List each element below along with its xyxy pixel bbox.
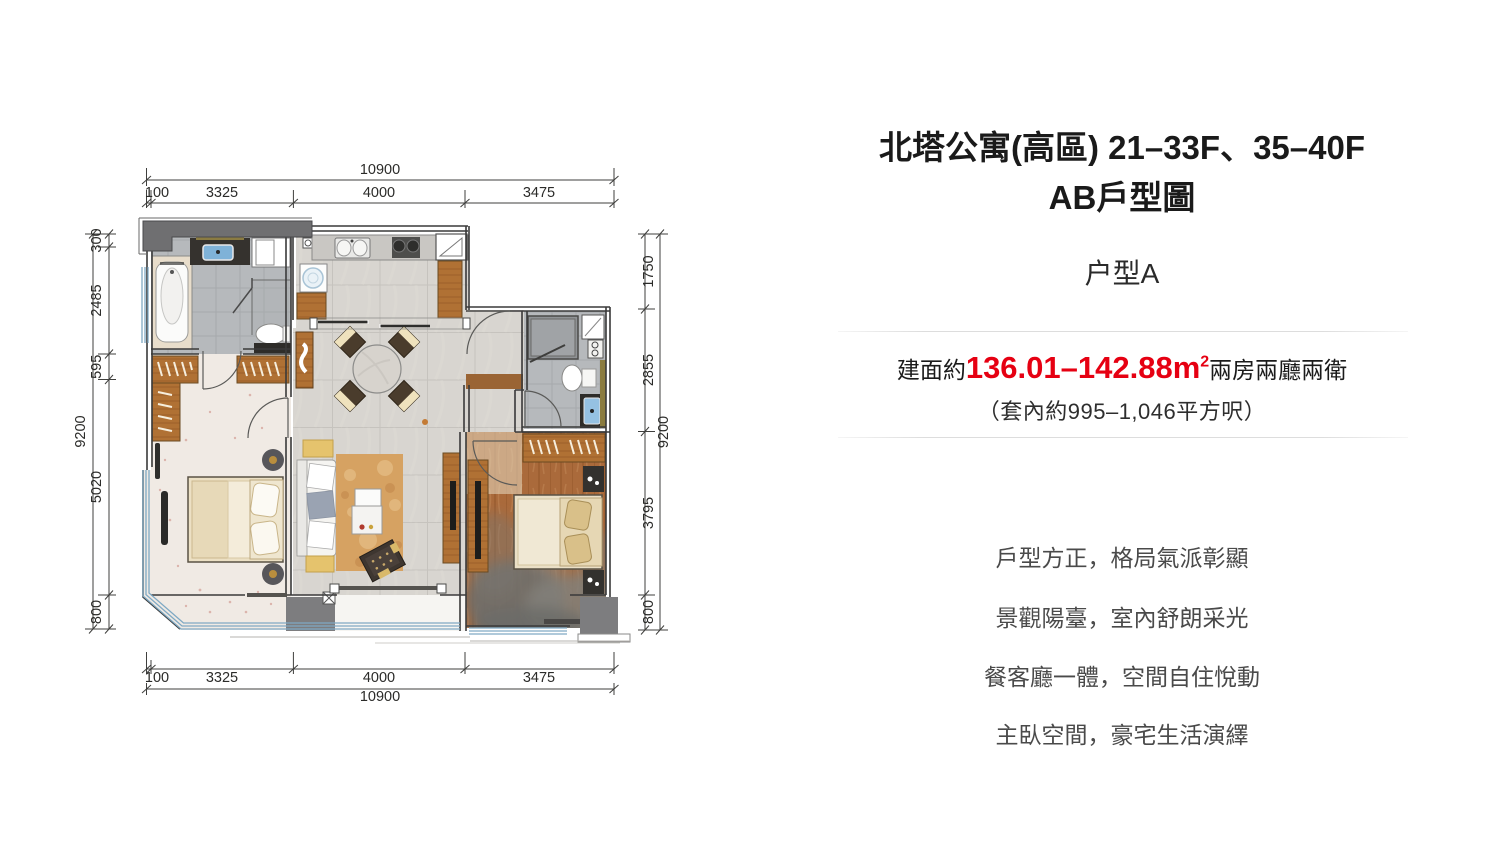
- svg-text:10900: 10900: [360, 689, 400, 705]
- svg-text:100: 100: [145, 185, 169, 201]
- svg-text:800: 800: [641, 600, 657, 624]
- svg-text:800: 800: [89, 600, 105, 624]
- svg-text:3325: 3325: [206, 185, 238, 201]
- svg-text:10900: 10900: [360, 162, 400, 178]
- svg-text:4000: 4000: [363, 185, 395, 201]
- svg-text:300: 300: [89, 228, 105, 252]
- svg-text:3475: 3475: [523, 670, 555, 686]
- svg-text:1750: 1750: [641, 255, 657, 287]
- svg-text:4000: 4000: [363, 670, 395, 686]
- svg-text:3475: 3475: [523, 185, 555, 201]
- svg-text:595: 595: [89, 355, 105, 379]
- svg-text:5020: 5020: [89, 471, 105, 503]
- svg-text:3325: 3325: [206, 670, 238, 686]
- svg-text:3795: 3795: [641, 497, 657, 529]
- svg-text:9200: 9200: [656, 416, 672, 448]
- svg-text:100: 100: [145, 670, 169, 686]
- svg-text:2855: 2855: [641, 354, 657, 386]
- svg-text:9200: 9200: [73, 415, 89, 447]
- svg-text:2485: 2485: [89, 284, 105, 316]
